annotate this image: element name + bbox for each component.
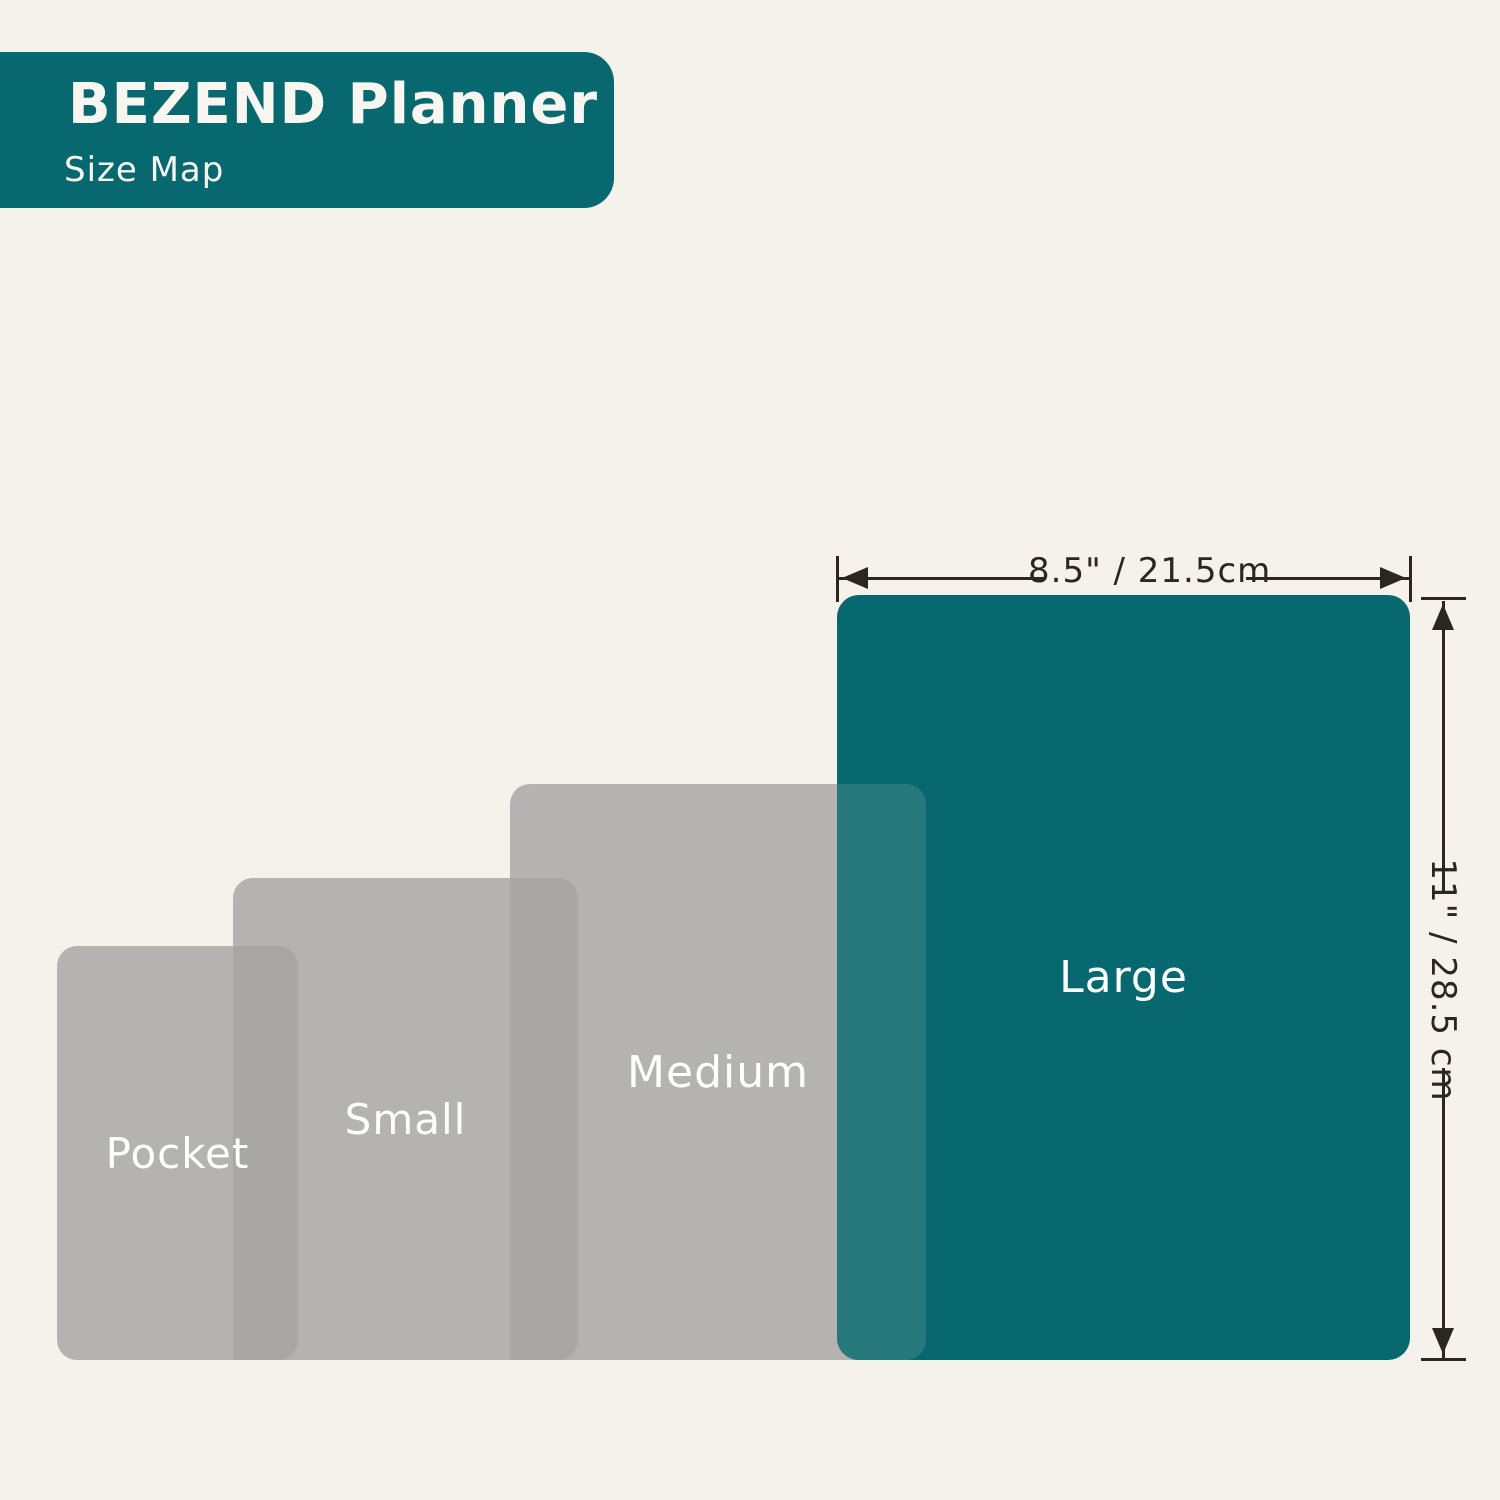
arrow-up-icon: [1432, 604, 1454, 630]
height-dimension-endcap-top: [1421, 597, 1466, 600]
header-subtitle: Size Map: [64, 150, 614, 190]
header-panel: BEZEND Planner Size Map: [0, 52, 614, 208]
brand-title: BEZEND Planner: [68, 74, 614, 136]
width-dimension-endcap-right: [1409, 556, 1412, 602]
arrow-left-icon: [842, 567, 868, 589]
width-dimension-endcap-left: [836, 556, 839, 602]
overlap-band-medium-large: [837, 784, 926, 1360]
size-map-diagram: BEZEND Planner Size Map Pocket Small Med…: [0, 0, 1500, 1500]
width-dimension-line-left: [838, 577, 1044, 580]
height-dimension-label: 11" / 28.5 cm: [1421, 825, 1465, 1135]
width-dimension-label: 8.5" / 21.5cm: [1028, 551, 1262, 591]
arrow-down-icon: [1432, 1328, 1454, 1354]
overlap-band-pocket-small: [233, 946, 298, 1360]
height-dimension-endcap-bottom: [1421, 1358, 1466, 1361]
overlap-band-small-medium: [510, 878, 578, 1360]
arrow-right-icon: [1380, 567, 1406, 589]
